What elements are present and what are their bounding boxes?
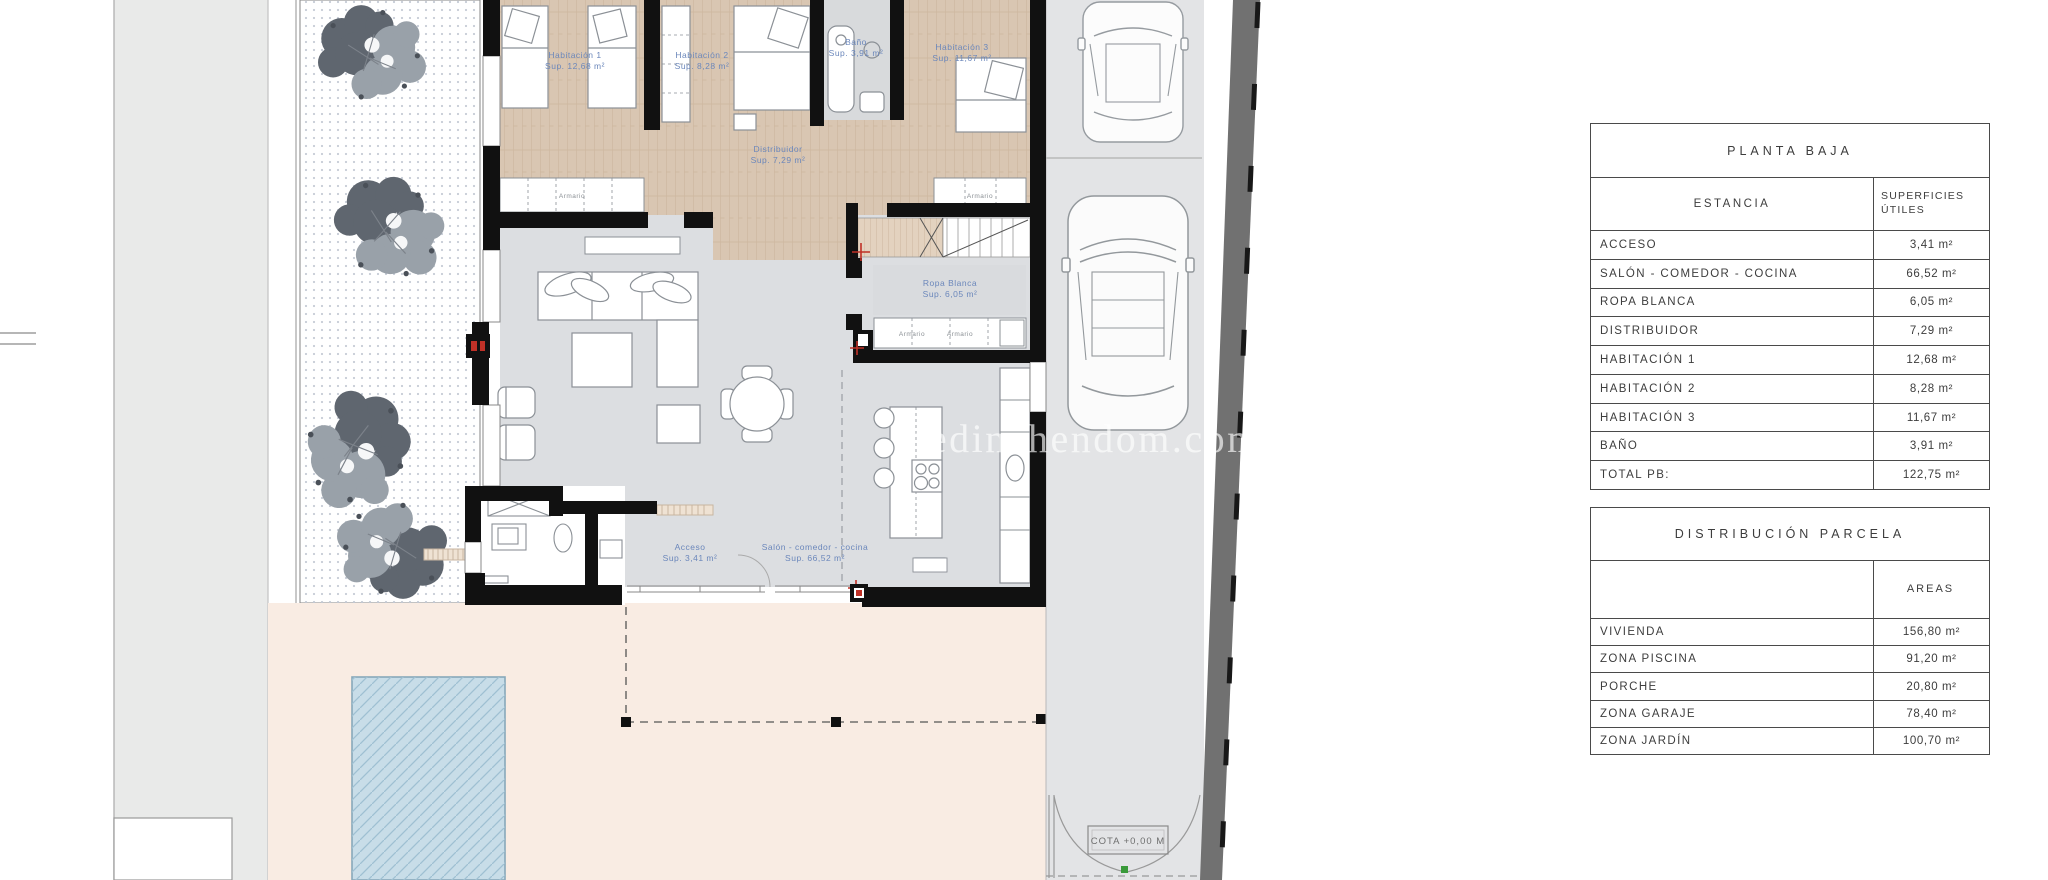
row-value: 100,70 m²: [1874, 728, 1989, 754]
row-label: ROPA BLANCA: [1591, 289, 1874, 317]
label-acceso: Acceso: [675, 542, 706, 552]
distribucion-parcela-header: AREAS: [1591, 561, 1989, 619]
label-habitacion-1: Habitación 1: [548, 50, 601, 60]
car-top: [1078, 2, 1188, 142]
stairs: [848, 218, 1030, 257]
table-row: BAÑO 3,91 m²: [1591, 432, 1989, 461]
table-row: ZONA PISCINA 91,20 m²: [1591, 646, 1989, 673]
label-bano: Baño: [845, 37, 867, 47]
row-value: 91,20 m²: [1874, 646, 1989, 672]
col-header-estancia: ESTANCIA: [1591, 178, 1874, 230]
label-ropa-blanca-sup: Sup. 6,05 m²: [923, 289, 978, 299]
armario-label-3: Armario: [899, 331, 925, 338]
row-value: 78,40 m²: [1874, 701, 1989, 727]
table-row: ACCESO 3,41 m²: [1591, 231, 1989, 260]
label-distribuidor-sup: Sup. 7,29 m²: [751, 155, 806, 165]
table-row: PORCHE 20,80 m²: [1591, 673, 1989, 700]
planta-baja-title: PLANTA BAJA: [1591, 124, 1989, 178]
table-row: ZONA JARDÍN 100,70 m²: [1591, 728, 1989, 754]
table-row: VIVIENDA 156,80 m²: [1591, 619, 1989, 646]
label-bano-sup: Sup. 3,91 m²: [829, 48, 884, 58]
row-value: 12,68 m²: [1874, 346, 1989, 374]
row-label: ZONA GARAJE: [1591, 701, 1874, 727]
table-row: HABITACIÓN 1 12,68 m²: [1591, 346, 1989, 375]
col-header-empty: [1591, 561, 1874, 618]
label-habitacion-2-sup: Sup. 8,28 m²: [675, 61, 730, 71]
table-row: DISTRIBUIDOR 7,29 m²: [1591, 317, 1989, 346]
label-habitacion-1-sup: Sup. 12,68 m²: [545, 61, 605, 71]
armario-label-4: Armario: [947, 331, 973, 338]
row-label: VIVIENDA: [1591, 619, 1874, 645]
cota-label: COTA +0,00 M: [1091, 836, 1165, 847]
small-annotation-box: [913, 558, 947, 572]
label-habitacion-2: Habitación 2: [675, 50, 728, 60]
label-distribuidor: Distribuidor: [754, 144, 803, 154]
armario-label-1: Armario: [559, 193, 585, 200]
row-value: 11,67 m²: [1874, 404, 1989, 432]
terrace-steps-hatch: [424, 549, 468, 560]
watermark: medinahendom.com: [895, 416, 1260, 461]
row-value: 20,80 m²: [1874, 673, 1989, 699]
garden-zone: [296, 0, 480, 603]
col-header-areas: AREAS: [1874, 561, 1989, 618]
armario-label-2: Armario: [967, 193, 993, 200]
planta-baja-table: PLANTA BAJA ESTANCIA SUPERFICIES ÚTILES …: [1590, 123, 1990, 490]
distribucion-parcela-title: DISTRIBUCIÓN PARCELA: [1591, 508, 1989, 561]
row-label: DISTRIBUIDOR: [1591, 317, 1874, 345]
table-row: HABITACIÓN 2 8,28 m²: [1591, 375, 1989, 404]
row-label: HABITACIÓN 2: [1591, 375, 1874, 403]
table-row: HABITACIÓN 3 11,67 m²: [1591, 404, 1989, 433]
car-suv: [1062, 196, 1194, 430]
table-row: ROPA BLANCA 6,05 m²: [1591, 289, 1989, 318]
label-ropa-blanca: Ropa Blanca: [923, 278, 977, 288]
label-acceso-sup: Sup. 3,41 m²: [663, 553, 718, 563]
row-value: 156,80 m²: [1874, 619, 1989, 645]
plot-boundary-ticks: [0, 333, 36, 344]
row-label: TOTAL PB:: [1591, 461, 1874, 489]
distribucion-parcela-table: DISTRIBUCIÓN PARCELA AREAS VIVIENDA 156,…: [1590, 507, 1990, 755]
row-value: 122,75 m²: [1874, 461, 1989, 489]
floor-plan-sheet: COTA +0,00 M: [0, 0, 2048, 880]
row-value: 3,91 m²: [1874, 432, 1989, 460]
row-value: 8,28 m²: [1874, 375, 1989, 403]
row-label: HABITACIÓN 3: [1591, 404, 1874, 432]
table-row: SALÓN - COMEDOR - COCINA 66,52 m²: [1591, 260, 1989, 289]
neighbor-strip: [114, 0, 268, 880]
row-label: ZONA JARDÍN: [1591, 728, 1874, 754]
table-row: TOTAL PB: 122,75 m²: [1591, 461, 1989, 489]
row-value: 3,41 m²: [1874, 231, 1989, 259]
row-value: 6,05 m²: [1874, 289, 1989, 317]
label-salon: Salón - comedor - cocina: [762, 542, 869, 552]
row-label: HABITACIÓN 1: [1591, 346, 1874, 374]
col-header-superficies: SUPERFICIES ÚTILES: [1874, 178, 1989, 230]
row-label: PORCHE: [1591, 673, 1874, 699]
planta-baja-header: ESTANCIA SUPERFICIES ÚTILES: [1591, 178, 1989, 231]
row-label: ACCESO: [1591, 231, 1874, 259]
swimming-pool: [352, 677, 505, 880]
label-habitacion-3-sup: Sup. 11,67 m²: [932, 53, 991, 63]
row-label: SALÓN - COMEDOR - COCINA: [1591, 260, 1874, 288]
row-label: BAÑO: [1591, 432, 1874, 460]
row-value: 7,29 m²: [1874, 317, 1989, 345]
table-row: ZONA GARAJE 78,40 m²: [1591, 701, 1989, 728]
label-salon-sup: Sup. 66,52 m²: [785, 553, 845, 563]
row-label: ZONA PISCINA: [1591, 646, 1874, 672]
label-habitacion-3: Habitación 3: [935, 42, 988, 52]
row-value: 66,52 m²: [1874, 260, 1989, 288]
